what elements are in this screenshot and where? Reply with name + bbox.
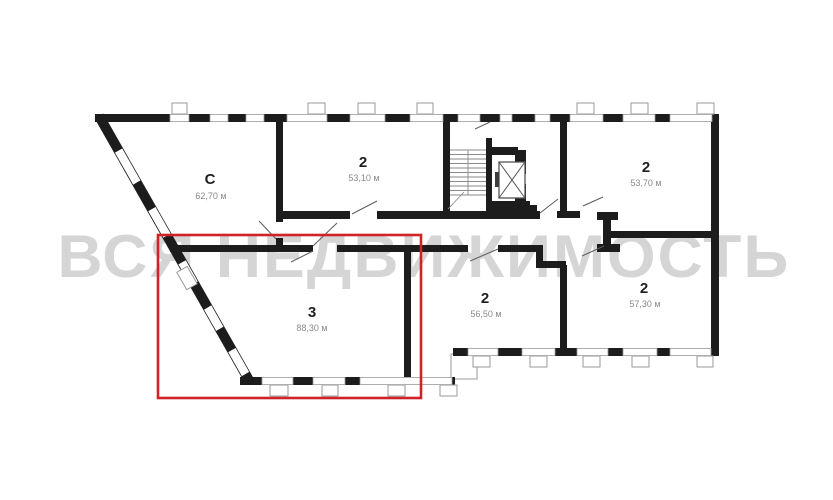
floorplan-drawing: ВСЯ НЕДВИЖИМОСТЬ: [0, 0, 833, 500]
unit-2b-area: 53,70 м: [630, 178, 661, 188]
elevator-icon: [495, 162, 525, 198]
unit-3-number: 3: [308, 304, 316, 321]
unit-2a-area: 53,10 м: [348, 173, 379, 183]
unit-2a-number: 2: [359, 154, 367, 171]
top-windows: [170, 114, 712, 121]
unit-label-3-highlighted: 3 88,30 м: [296, 304, 327, 333]
unit-c-number: C: [205, 171, 216, 188]
unit-2d-number: 2: [640, 280, 648, 297]
bottom-right-window-tabs: [473, 356, 713, 367]
unit-label-2-top-left: 2 53,10 м: [348, 154, 379, 183]
unit3-window-tabs: [270, 385, 457, 396]
unit-2d-area: 57,30 м: [629, 299, 660, 309]
unit-3-area: 88,30 м: [296, 323, 327, 333]
unit-label-c: C 62,70 м: [195, 171, 226, 201]
unit-2c-number: 2: [481, 290, 489, 307]
unit-2c-area: 56,50 м: [470, 309, 501, 319]
floorplan-canvas: ВСЯ НЕДВИЖИМОСТЬ: [0, 0, 833, 500]
staircase-icon: [448, 150, 486, 209]
unit-label-2-bottom-mid: 2 56,50 м: [470, 290, 501, 319]
unit-2b-number: 2: [642, 159, 650, 176]
top-window-tabs: [172, 103, 714, 114]
unit-label-2-top-right: 2 53,70 м: [630, 159, 661, 188]
unit-c-area: 62,70 м: [195, 191, 226, 201]
